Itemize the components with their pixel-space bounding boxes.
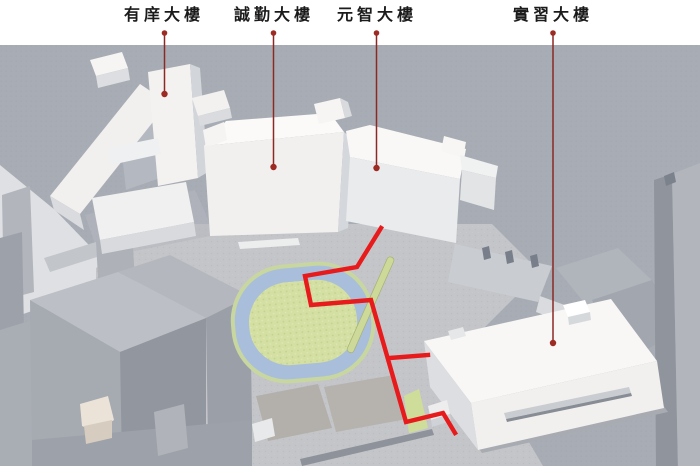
context-building-right xyxy=(654,163,700,470)
label-building-youxiang: 有庠大樓 xyxy=(124,6,204,25)
label-building-shixi: 實習大樓 xyxy=(513,6,593,25)
label-building-yuanzhi: 元智大樓 xyxy=(337,6,417,25)
bottom-margin xyxy=(0,466,700,473)
label-building-chengqin: 誠勤大樓 xyxy=(234,6,314,25)
campus-3d-render xyxy=(0,0,700,473)
campus-map-figure: 有庠大樓 誠勤大樓 元智大樓 實習大樓 xyxy=(0,0,700,473)
